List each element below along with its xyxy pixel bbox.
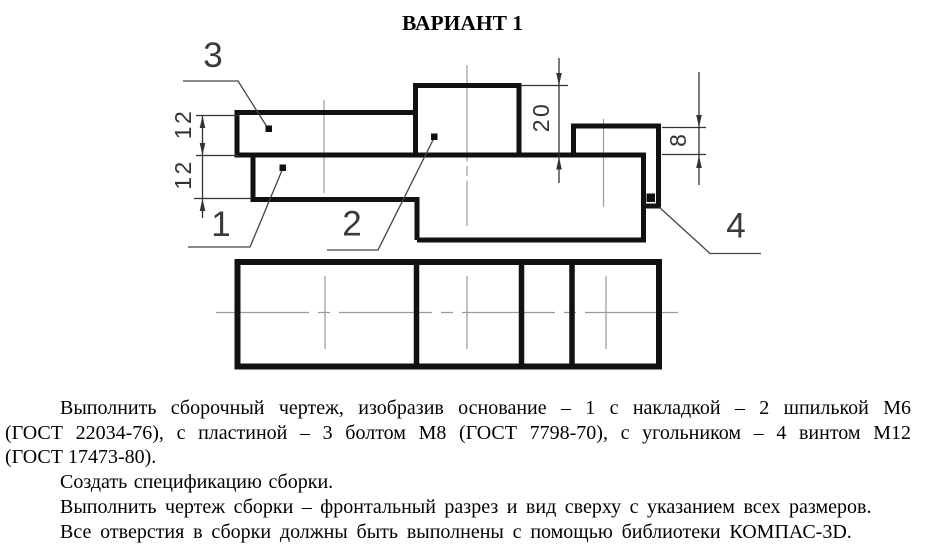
svg-text:1: 1 [211,205,230,244]
svg-text:3: 3 [203,36,222,75]
svg-text:20: 20 [528,102,554,133]
svg-text:2: 2 [342,205,361,244]
svg-text:8: 8 [665,134,691,147]
svg-text:12: 12 [170,109,196,140]
svg-text:12: 12 [170,159,196,190]
svg-text:4: 4 [726,207,745,246]
